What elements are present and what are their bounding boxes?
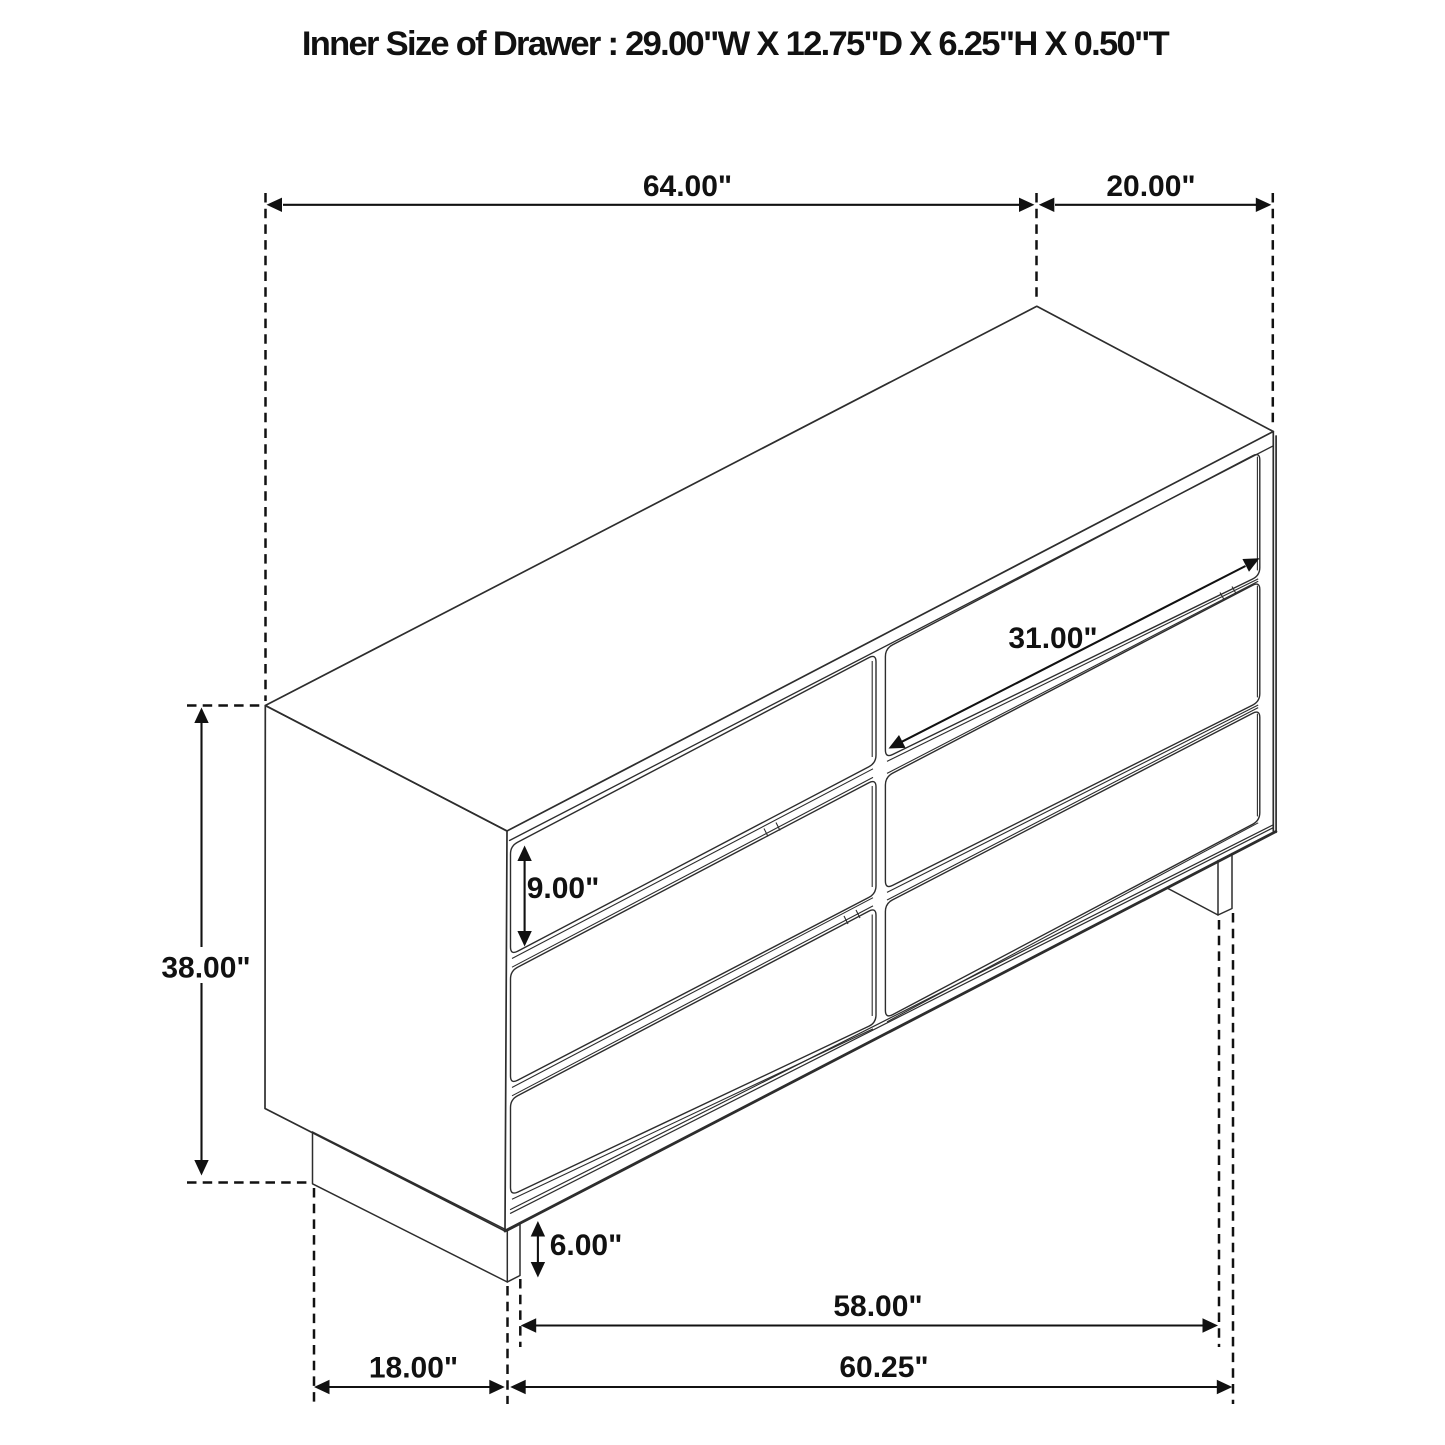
svg-text:64.00": 64.00" [643, 170, 732, 203]
svg-text:58.00": 58.00" [833, 1290, 922, 1323]
svg-text:18.00": 18.00" [369, 1352, 458, 1385]
svg-text:20.00": 20.00" [1106, 170, 1195, 203]
svg-text:60.25": 60.25" [839, 1351, 928, 1384]
svg-text:6.00": 6.00" [550, 1229, 623, 1262]
svg-text:31.00": 31.00" [1008, 622, 1097, 655]
svg-text:38.00": 38.00" [161, 952, 250, 985]
svg-text:Inner Size of Drawer : 29.00"W: Inner Size of Drawer : 29.00"W X 12.75"D… [302, 25, 1170, 63]
svg-text:9.00": 9.00" [527, 872, 600, 905]
